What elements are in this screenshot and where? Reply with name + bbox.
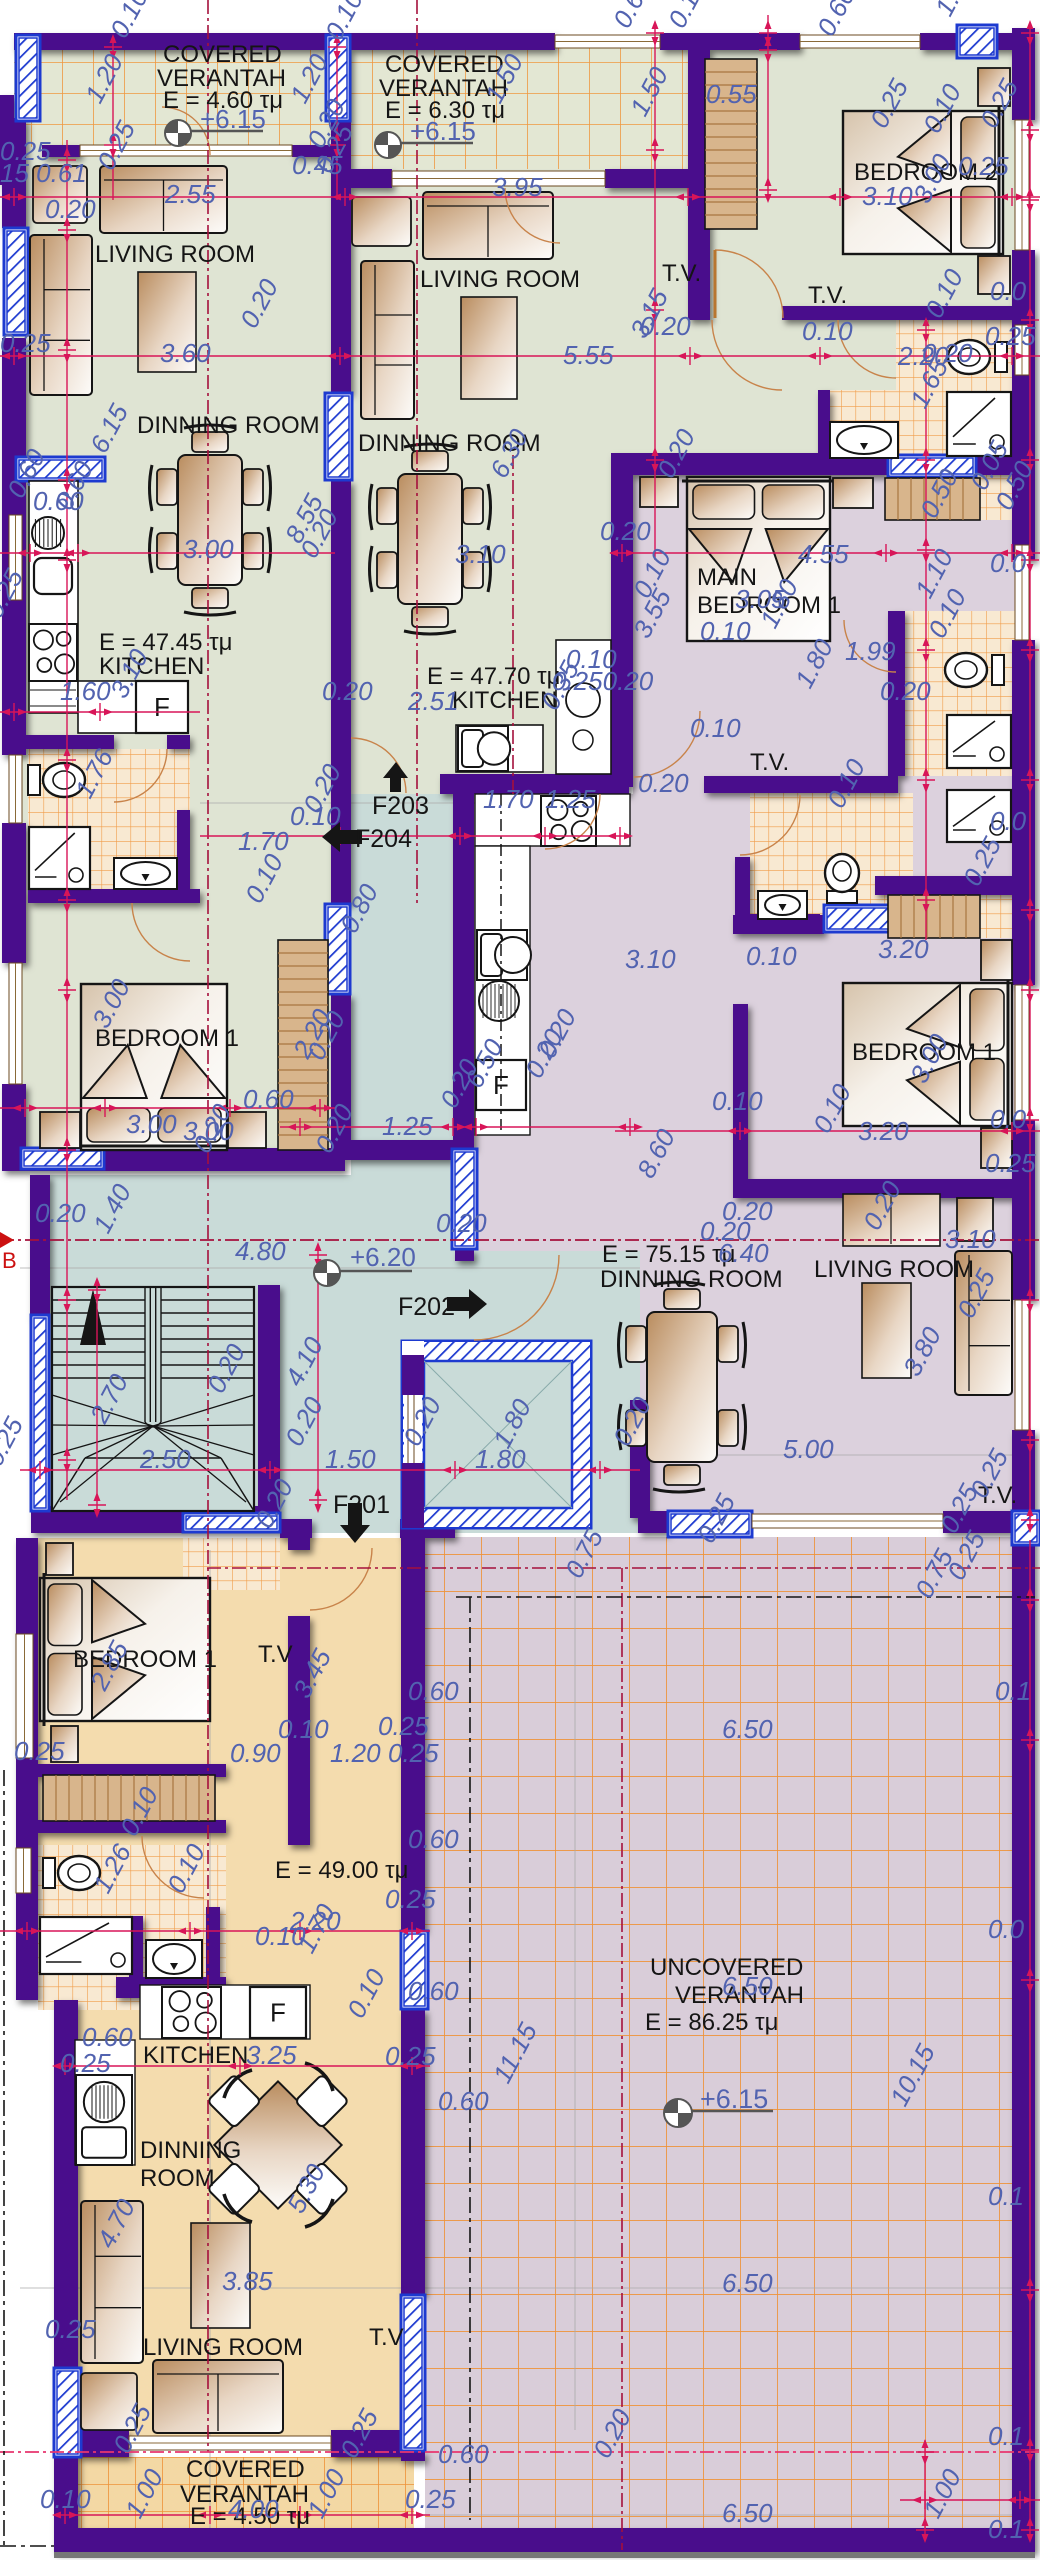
svg-text:0.20: 0.20: [638, 768, 689, 798]
svg-text:0.25: 0.25: [388, 1738, 439, 1768]
svg-text:0.1: 0.1: [988, 2181, 1024, 2211]
svg-text:0.20: 0.20: [436, 1208, 487, 1238]
svg-text:2.50: 2.50: [139, 1444, 191, 1474]
svg-text:6.50: 6.50: [722, 1714, 773, 1744]
svg-text:0.20: 0.20: [45, 194, 96, 224]
svg-text:0.25: 0.25: [985, 321, 1036, 351]
svg-text:COVERED: COVERED: [186, 2456, 305, 2483]
svg-text:6.50: 6.50: [722, 2498, 773, 2528]
svg-text:1.50: 1.50: [325, 1444, 376, 1474]
svg-text:15 0.61: 15 0.61: [0, 158, 87, 188]
svg-text:0.60: 0.60: [243, 1084, 294, 1114]
svg-text:0.10: 0.10: [690, 713, 741, 743]
svg-text:COVERED: COVERED: [163, 41, 282, 68]
svg-text:T.V.: T.V.: [808, 282, 847, 309]
svg-text:KITCHEN: KITCHEN: [143, 2042, 248, 2069]
svg-text:+6.20: +6.20: [350, 1242, 416, 1272]
svg-text:4.00: 4.00: [228, 2494, 279, 2524]
svg-text:F: F: [154, 692, 170, 722]
svg-text:BEDROOM 1: BEDROOM 1: [95, 1025, 239, 1052]
svg-text:0.1: 0.1: [988, 2514, 1024, 2544]
svg-text:B: B: [2, 1248, 17, 1273]
svg-text:0.25: 0.25: [45, 2314, 96, 2344]
svg-text:LIVING ROOM: LIVING ROOM: [420, 266, 580, 293]
svg-text:3.60: 3.60: [160, 338, 211, 368]
svg-text:T.V: T.V: [258, 1641, 293, 1668]
svg-text:0.0: 0.0: [990, 1104, 1027, 1134]
svg-text:T.V.: T.V.: [750, 749, 789, 776]
svg-text:0.60: 0.60: [82, 2022, 133, 2052]
svg-text:0.25: 0.25: [985, 1148, 1036, 1178]
svg-text:4.80: 4.80: [235, 1236, 286, 1266]
svg-text:0.0: 0.0: [990, 276, 1027, 306]
svg-text:1.60: 1.60: [60, 676, 111, 706]
svg-text:E = 47.45 τμ: E = 47.45 τμ: [99, 629, 232, 656]
svg-text:0.25: 0.25: [405, 2484, 456, 2514]
svg-text:+6.15: +6.15: [700, 2084, 768, 2114]
svg-text:0.20: 0.20: [922, 338, 973, 368]
svg-text:0.90: 0.90: [230, 1738, 281, 1768]
svg-text:0.0: 0.0: [988, 1914, 1025, 1944]
svg-text:0.60: 0.60: [438, 2439, 489, 2469]
svg-text:0.10: 0.10: [255, 1921, 306, 1951]
svg-text:5.55: 5.55: [563, 340, 614, 370]
svg-text:3.20: 3.20: [878, 934, 929, 964]
svg-text:3.10: 3.10: [625, 944, 676, 974]
svg-text:0.10: 0.10: [802, 316, 853, 346]
svg-text:0.10: 0.10: [278, 1714, 329, 1744]
svg-text:0.25: 0.25: [385, 1884, 436, 1914]
svg-text:0.25: 0.25: [0, 328, 51, 358]
svg-text:E = 4.60 τμ: E = 4.60 τμ: [163, 87, 283, 114]
svg-text:F202: F202: [398, 1293, 455, 1321]
svg-text:1.25: 1.25: [382, 1111, 433, 1141]
svg-text:DINNING ROOM: DINNING ROOM: [600, 1266, 783, 1293]
svg-text:0.10: 0.10: [40, 2484, 91, 2514]
svg-text:0.25: 0.25: [385, 2041, 436, 2071]
svg-text:1.80: 1.80: [475, 1444, 526, 1474]
svg-text:0.25: 0.25: [958, 151, 1009, 181]
svg-text:3.85: 3.85: [222, 2266, 273, 2296]
svg-text:5.00: 5.00: [783, 1434, 834, 1464]
svg-text:0.0: 0.0: [990, 548, 1027, 578]
svg-text:0.20: 0.20: [722, 1196, 773, 1226]
svg-text:0.1: 0.1: [995, 1676, 1031, 1706]
svg-text:3.10: 3.10: [945, 1224, 996, 1254]
svg-text:COVERED: COVERED: [385, 51, 504, 78]
svg-text:0.10: 0.10: [712, 1086, 763, 1116]
svg-text:0.10: 0.10: [746, 941, 797, 971]
svg-text:2.55: 2.55: [164, 179, 216, 209]
svg-text:0.60: 0.60: [33, 486, 84, 516]
svg-text:1.70: 1.70: [483, 784, 534, 814]
svg-text:1.20: 1.20: [330, 1738, 381, 1768]
svg-text:F203: F203: [372, 792, 429, 820]
svg-text:1.25: 1.25: [545, 784, 596, 814]
svg-text:LIVING ROOM: LIVING ROOM: [814, 1256, 974, 1283]
svg-text:0.20: 0.20: [35, 1198, 86, 1228]
svg-text:0.25: 0.25: [60, 2048, 111, 2078]
svg-text:0.0: 0.0: [990, 806, 1027, 836]
svg-text:E = 6.30 τμ: E = 6.30 τμ: [385, 97, 505, 124]
svg-text:0.60: 0.60: [408, 1976, 459, 2006]
svg-text:3.10: 3.10: [455, 539, 506, 569]
svg-text:3.10: 3.10: [862, 181, 913, 211]
svg-text:0.45: 0.45: [292, 150, 343, 180]
svg-text:3.25: 3.25: [246, 2040, 297, 2070]
svg-text:F: F: [270, 1998, 286, 2028]
svg-text:0.60: 0.60: [408, 1676, 459, 1706]
svg-text:3.00: 3.00: [183, 534, 234, 564]
svg-text:3.95: 3.95: [492, 172, 543, 202]
svg-text:0.20: 0.20: [880, 676, 931, 706]
svg-text:4.55: 4.55: [798, 539, 849, 569]
svg-text:DINNING ROOM: DINNING ROOM: [137, 412, 320, 439]
svg-text:LIVING ROOM: LIVING ROOM: [95, 241, 255, 268]
svg-text:E = 49.00 τμ: E = 49.00 τμ: [275, 1857, 408, 1884]
svg-text:E = 86.25 τμ: E = 86.25 τμ: [645, 2009, 778, 2036]
svg-text:0.60: 0.60: [408, 1824, 459, 1854]
svg-text:6.50: 6.50: [722, 2268, 773, 2298]
svg-text:0.25: 0.25: [14, 1736, 65, 1766]
svg-text:3.00: 3.00: [126, 1109, 177, 1139]
svg-text:2.51: 2.51: [407, 686, 459, 716]
svg-text:3.20: 3.20: [858, 1116, 909, 1146]
svg-text:0.55: 0.55: [706, 79, 757, 109]
svg-text:1.99: 1.99: [845, 636, 896, 666]
svg-text:6.50: 6.50: [722, 1971, 773, 2001]
svg-text:0.10: 0.10: [566, 644, 617, 674]
svg-text:ROOM: ROOM: [140, 2165, 215, 2192]
svg-text:F204: F204: [355, 825, 412, 853]
svg-text:0.20: 0.20: [600, 516, 651, 546]
svg-text:0.25: 0.25: [378, 1711, 429, 1741]
svg-text:0.60: 0.60: [438, 2086, 489, 2116]
svg-text:0.1: 0.1: [988, 2421, 1024, 2451]
svg-text:T.V.: T.V.: [662, 260, 701, 287]
svg-text:T.V: T.V: [369, 2324, 404, 2351]
svg-text:DINNING: DINNING: [140, 2137, 241, 2164]
svg-text:0.10: 0.10: [700, 616, 751, 646]
svg-text:LIVING ROOM: LIVING ROOM: [143, 2334, 303, 2361]
svg-text:0.20: 0.20: [322, 676, 373, 706]
